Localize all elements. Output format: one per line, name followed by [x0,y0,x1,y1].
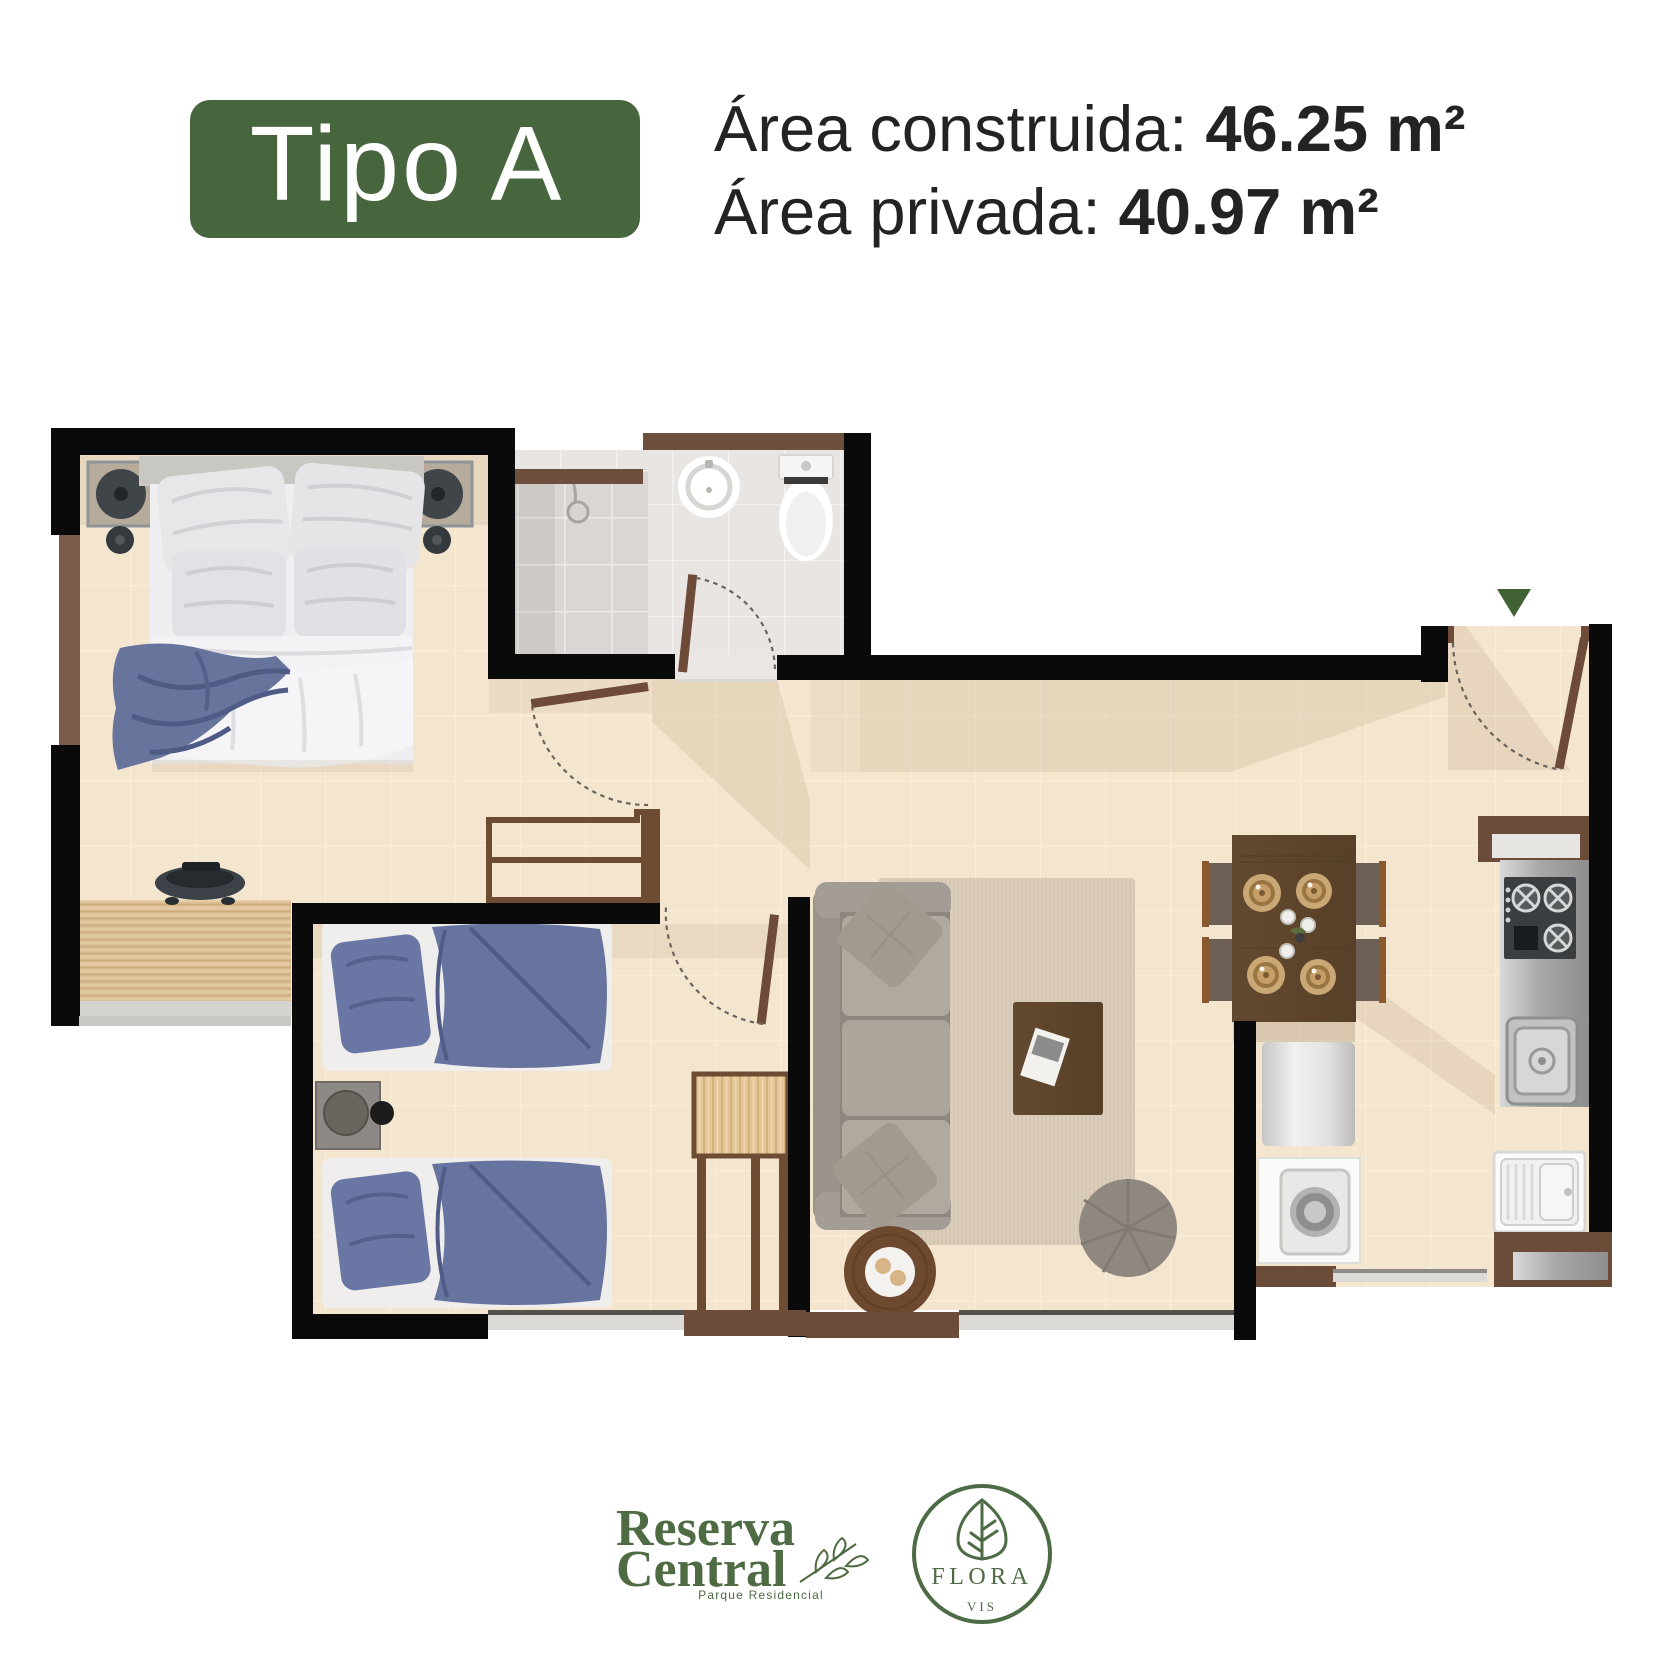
svg-text:Área privada: 40.97 m²: Área privada: 40.97 m² [714,175,1379,248]
svg-text:VIS: VIS [967,1599,997,1614]
svg-text:Parque Residencial: Parque Residencial [698,1588,824,1602]
svg-text:Tipo A: Tipo A [250,105,565,223]
svg-text:Área construida: 46.25 m²: Área construida: 46.25 m² [714,92,1466,165]
svg-text:FLORA: FLORA [931,1564,1032,1590]
